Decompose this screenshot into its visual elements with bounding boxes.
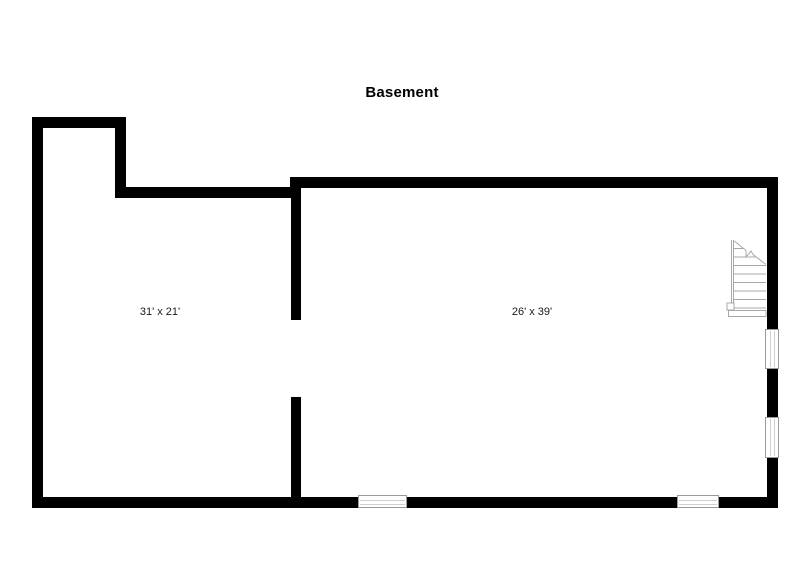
window-bottom-right-icon	[677, 495, 719, 508]
window-glass	[770, 419, 775, 456]
window-right-upper-icon	[765, 329, 779, 369]
window-glass	[770, 331, 775, 367]
wall-right-room-top	[290, 177, 778, 188]
plan-title: Basement	[302, 84, 502, 101]
room-label-right: 26' x 39'	[472, 306, 592, 318]
window-right-lower-icon	[765, 417, 779, 458]
window-glass	[360, 500, 405, 505]
wall-left-room-top	[115, 187, 300, 198]
wall-left	[32, 117, 43, 508]
floorplan: Basement 31' x 21' 26' x 39'	[0, 0, 809, 588]
wall-notch-right	[115, 117, 126, 198]
wall-right-middle	[767, 369, 778, 418]
wall-divider-upper	[291, 188, 301, 320]
wall-divider-lower	[291, 397, 301, 497]
window-bottom-left-icon	[358, 495, 407, 508]
wall-bottom-left-seg	[32, 497, 359, 508]
room-label-left: 31' x 21'	[100, 306, 220, 318]
wall-bottom-mid-seg	[406, 497, 678, 508]
staircase-icon	[723, 235, 769, 320]
window-glass	[679, 500, 717, 505]
wall-notch-top	[32, 117, 126, 128]
wall-bottom-right-seg	[718, 497, 778, 508]
